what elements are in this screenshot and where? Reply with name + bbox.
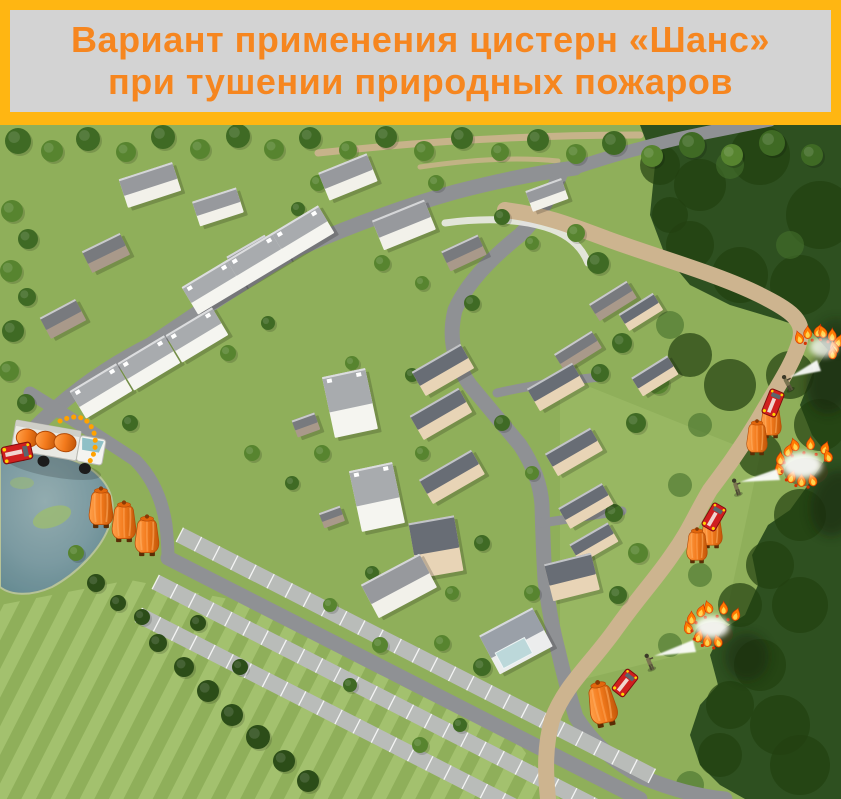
- ember: [806, 485, 809, 488]
- ember: [781, 470, 784, 473]
- forest-canopy: [772, 577, 828, 633]
- ember: [712, 646, 715, 649]
- title-line-2: при тушении природных пожаров: [108, 61, 733, 103]
- forest-canopy: [770, 735, 830, 795]
- title-banner: Вариант применения цистерн «Шанс» при ту…: [0, 0, 841, 125]
- forest-canopy: [698, 733, 742, 777]
- scene-illustration: [0, 125, 841, 799]
- forest-canopy: [652, 197, 688, 233]
- aerial-scene: [0, 125, 841, 799]
- ember: [690, 629, 693, 632]
- title-banner-inner: Вариант применения цистерн «Шанс» при ту…: [10, 10, 831, 112]
- ember: [785, 478, 788, 481]
- ember: [726, 618, 729, 621]
- ember: [794, 484, 797, 487]
- infographic: Вариант применения цистерн «Шанс» при ту…: [0, 0, 841, 799]
- ember: [701, 644, 704, 647]
- ember: [804, 342, 807, 345]
- forest-canopy: [704, 359, 756, 411]
- title-line-1: Вариант применения цистерн «Шанс»: [71, 19, 770, 61]
- forest-canopy: [706, 681, 754, 729]
- ember: [693, 638, 696, 641]
